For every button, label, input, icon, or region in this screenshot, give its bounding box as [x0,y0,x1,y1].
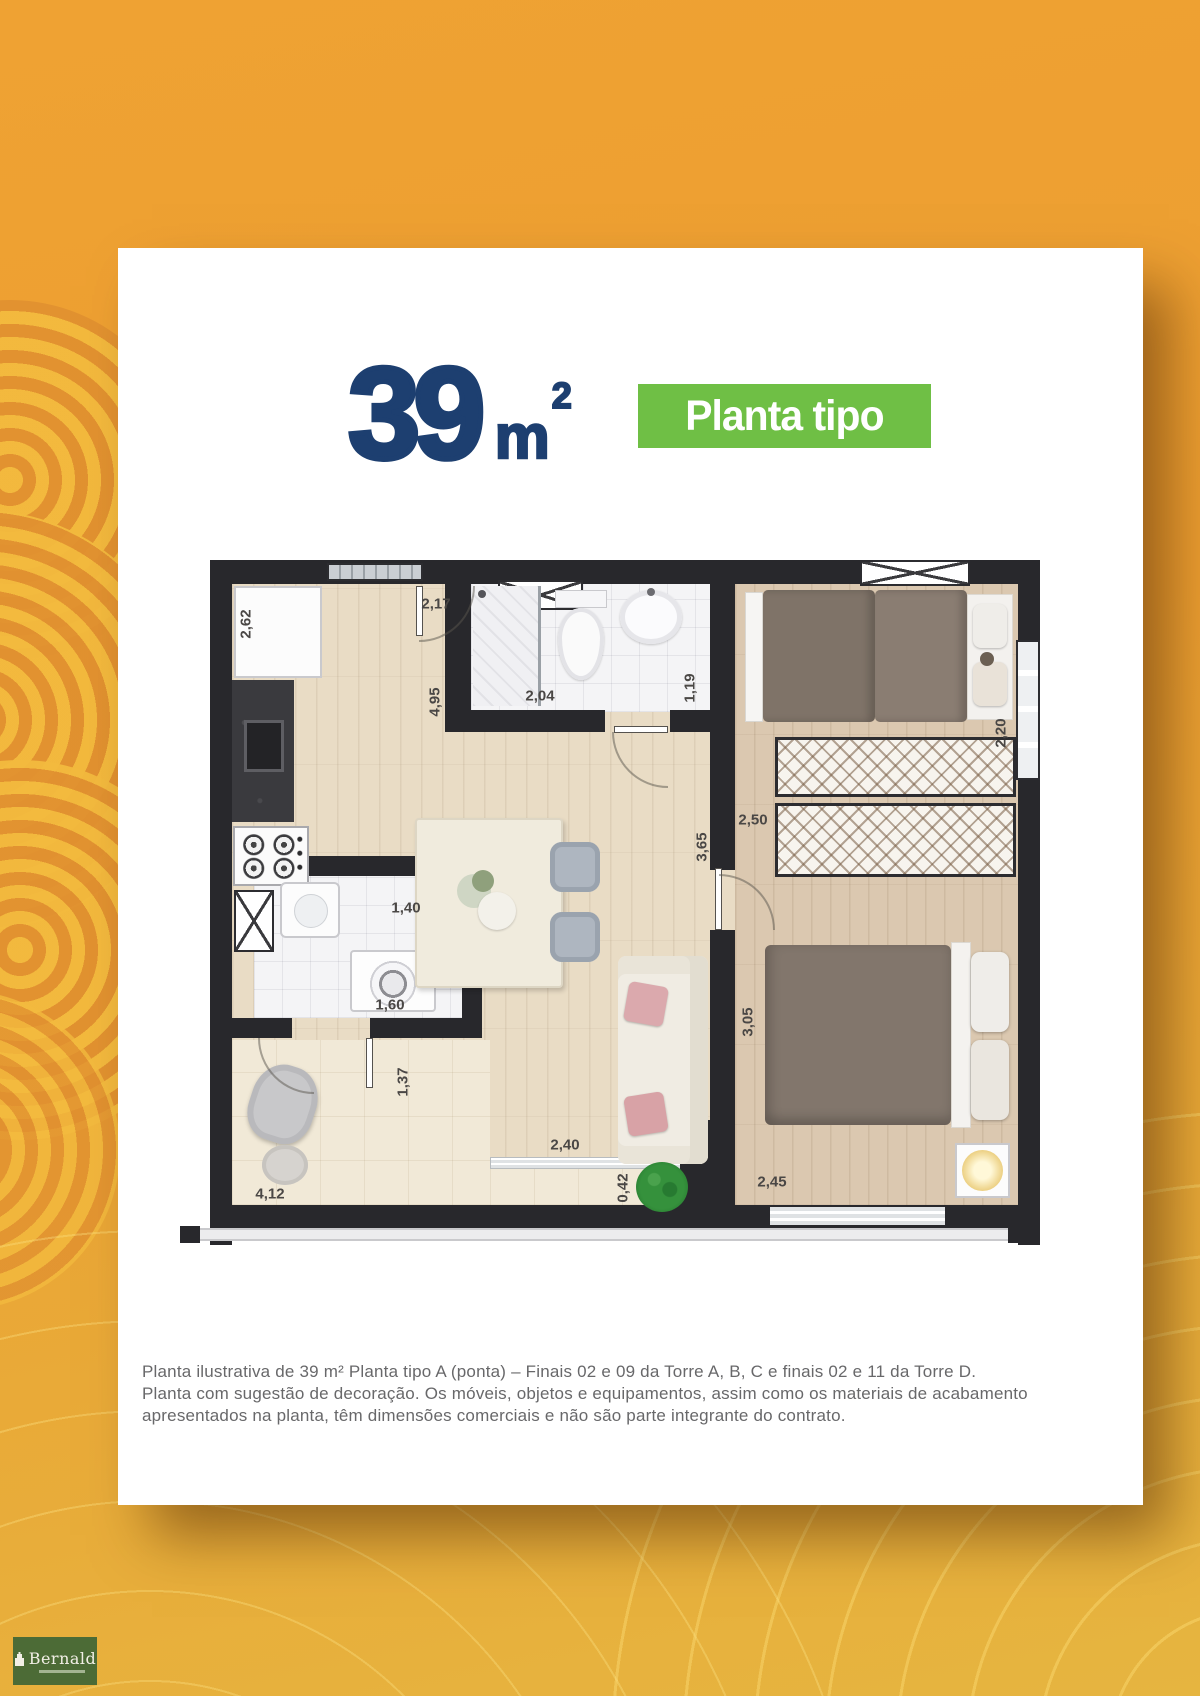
area-value: 39 [348,348,479,478]
dining-chair [550,842,600,892]
dimension-label: 1,37 [388,1074,417,1091]
dimension-label: 2,50 [738,812,767,829]
bed1-duvet [763,590,875,722]
dimension-label: 4,12 [255,1186,284,1203]
sofa-pillow-pink [623,1091,669,1137]
wall-laundry-bottom [232,1018,292,1038]
railing-post [180,1226,200,1243]
disclaimer-text: Planta ilustrativa de 39 m² Planta tipo … [142,1361,1102,1427]
dining-chair [550,912,600,962]
dimension-label: 0,42 [608,1180,637,1197]
wall-bathroom-bottom [670,710,710,732]
plan-type-label: Planta tipo [685,392,883,441]
floor-plan: 2,62 2,17 4,95 2,04 1,19 2,20 2,50 3,65 … [210,560,1040,1245]
double-bed-sheet [951,942,971,1128]
bedside-lamp-glow [962,1150,1003,1191]
shower-head [478,590,486,598]
kitchen-sink [244,720,284,772]
sofa-pillow-pink [623,981,669,1027]
double-bed-duvet [765,945,951,1125]
wall-bathroom-bottom [445,710,605,732]
railing-post [1008,1226,1028,1243]
building-icon [14,1652,25,1666]
bedroom1-side-window [1016,640,1040,780]
pillow [973,662,1007,706]
dimension-label: 1,19 [675,680,704,697]
bed1-sheet [745,592,763,722]
closet-bedroom1 [775,737,1016,797]
dimension-label: 1,60 [375,997,404,1014]
dimension-label: 2,20 [986,725,1015,742]
logo-row: Bernald [14,1649,97,1668]
balcony-railing [182,1228,1028,1241]
bed2-duvet [875,590,967,722]
nightstand-lamp [980,652,994,666]
logo-tagline-rule [39,1670,85,1673]
pillow [971,952,1009,1032]
dimension-label: 2,40 [550,1137,579,1154]
dimension-label: 2,04 [525,688,554,705]
toilet-tank [555,590,607,608]
dimension-label: 2,17 [421,596,450,613]
faucet [647,588,655,596]
bedroom2-balcony-door [770,1207,945,1225]
kitchen-window [327,563,423,581]
dimension-label: 3,05 [733,1014,762,1031]
bathroom-door [614,726,668,733]
pillow [971,1040,1009,1120]
area-unit: m2 [495,402,570,473]
wall-laundry-bottom [370,1018,482,1038]
brand-logo: Bernald [13,1637,97,1685]
dimension-label: 3,65 [687,839,716,856]
logo-text: Bernald [29,1649,97,1668]
pillow [973,604,1007,648]
stove [233,826,309,886]
bathroom-sink [620,590,682,644]
bedroom1-window [860,560,970,586]
disclaimer-line: Planta com sugestão de decoração. Os móv… [142,1384,1028,1403]
terrace-pouf [262,1145,308,1185]
laundry-tank-basin [294,894,328,928]
wall-hall [710,560,735,870]
centerpiece-leaves [472,870,494,892]
brochure-card: 39 m2 Planta tipo [118,248,1143,1505]
topiary-plant [636,1162,688,1212]
area-title: 39 m2 [348,348,570,478]
laundry-door [366,1038,373,1088]
dimension-label: 4,95 [420,694,449,711]
brochure-page: 39 m2 Planta tipo [0,0,1200,1696]
wall-left [210,560,232,1245]
plan-type-badge: Planta tipo [638,384,931,448]
centerpiece-vase [478,892,516,930]
disclaimer-line: apresentados na planta, têm dimensões co… [142,1406,846,1425]
dimension-label: 1,40 [391,900,420,917]
disclaimer-line: Planta ilustrativa de 39 m² Planta tipo … [142,1362,976,1381]
water-heater [234,890,274,952]
closet-bedroom2 [775,803,1016,877]
dimension-label: 2,62 [231,616,260,633]
dimension-label: 2,45 [757,1174,786,1191]
